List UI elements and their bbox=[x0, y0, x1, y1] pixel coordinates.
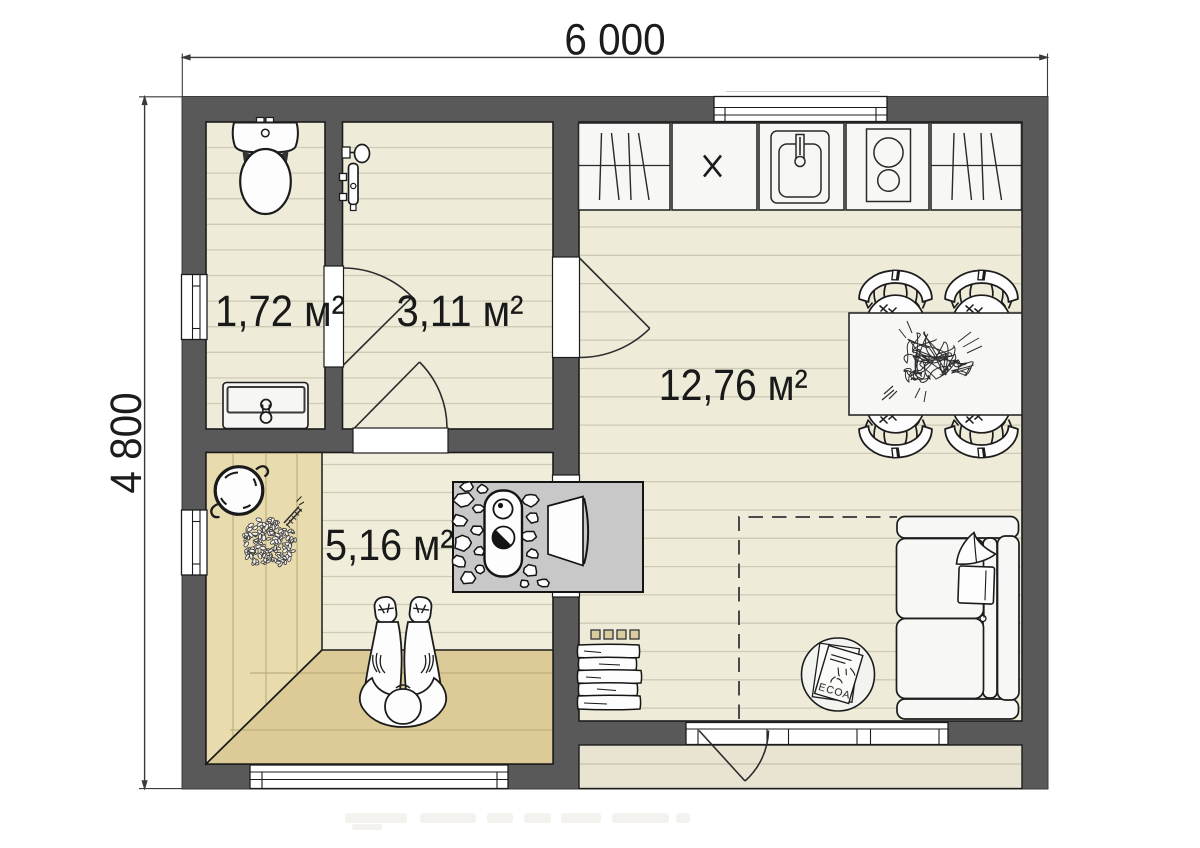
svg-text:3,11 м²: 3,11 м² bbox=[397, 287, 524, 336]
svg-text:4 800: 4 800 bbox=[102, 392, 151, 493]
svg-text:12,76 м²: 12,76 м² bbox=[659, 361, 808, 410]
svg-text:5,16 м²: 5,16 м² bbox=[325, 521, 453, 570]
svg-text:6 000: 6 000 bbox=[564, 15, 665, 64]
svg-text:1,72 м²: 1,72 м² bbox=[215, 287, 345, 336]
